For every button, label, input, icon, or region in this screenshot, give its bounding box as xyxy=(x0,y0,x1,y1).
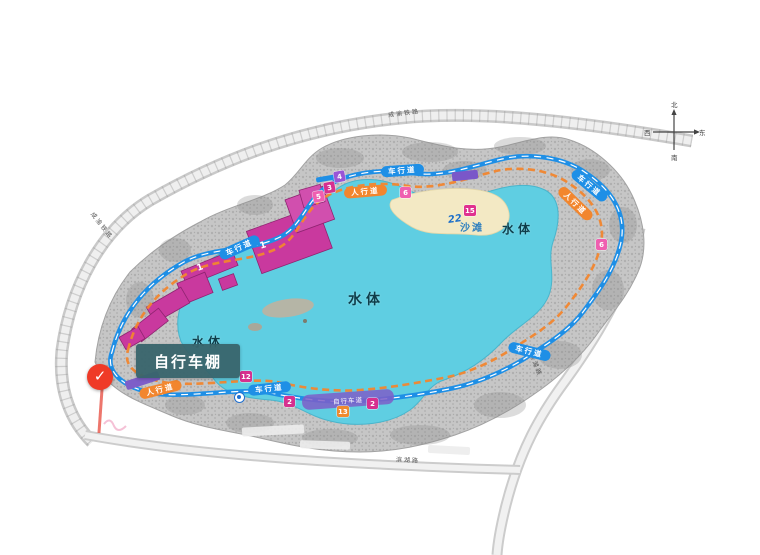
tooltip-bike-shed: 自行车棚 xyxy=(136,344,240,378)
badge-12: 12 xyxy=(240,371,252,382)
badge-6-top: 6 xyxy=(400,187,411,198)
compass-west: 西 xyxy=(644,127,651,137)
water-label-right: 水体 xyxy=(502,220,534,237)
badge-13: 13 xyxy=(337,406,349,417)
water-label-center: 水体 xyxy=(348,289,384,309)
bike-station-icon xyxy=(234,392,245,403)
park-plan-map: 成渝铁路 成渝铁路 滨湖路 滨湖路 水体 水体 水体 沙滩 22 车行道 车行道… xyxy=(0,0,760,555)
beach-label: 沙滩 xyxy=(460,219,484,234)
badge-5: 5 xyxy=(312,190,325,203)
check-icon: ✓ xyxy=(94,369,107,384)
road-label-bottom: 滨湖路 xyxy=(396,454,420,464)
badge-4: 4 xyxy=(333,170,346,183)
tooltip-label: 自行车棚 xyxy=(154,351,222,372)
compass-east: 东 xyxy=(699,127,706,137)
point-number-22: 22 xyxy=(447,213,462,226)
badge-15: 15 xyxy=(464,205,476,216)
park-map-svg xyxy=(0,0,760,555)
badge-6-right: 6 xyxy=(596,239,607,250)
compass-north: 北 xyxy=(671,99,678,109)
compass: 北 南 西 东 xyxy=(643,98,705,162)
compass-south: 南 xyxy=(671,152,678,162)
pink-scribble xyxy=(104,420,126,430)
badge-2-right: 2 xyxy=(367,398,378,409)
badge-3: 3 xyxy=(323,181,336,194)
badge-2-left: 2 xyxy=(284,396,295,407)
selected-location-marker[interactable]: ✓ xyxy=(87,364,113,390)
